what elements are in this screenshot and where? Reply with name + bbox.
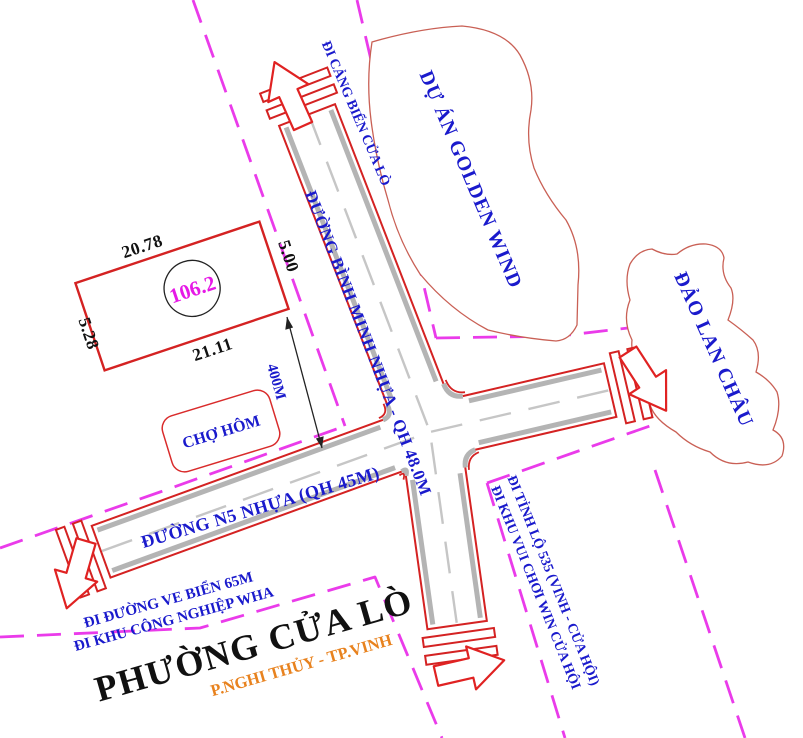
road-end-bar bbox=[423, 628, 496, 647]
parcel-dim-right: 5.00 bbox=[274, 237, 303, 274]
location-sketch-map: 20.78 21.11 5.00 5.28 106.2 400M CHỢ HÔM… bbox=[0, 0, 803, 738]
cho-hom-box: CHỢ HÔM bbox=[159, 387, 283, 475]
boundary-line bbox=[655, 470, 745, 738]
parcel: 20.78 21.11 5.00 5.28 106.2 bbox=[55, 190, 321, 397]
direction-label-tinh-lo: ĐI TỈNH LỘ 535 (VINH - CỬA HỘI) bbox=[504, 473, 604, 688]
